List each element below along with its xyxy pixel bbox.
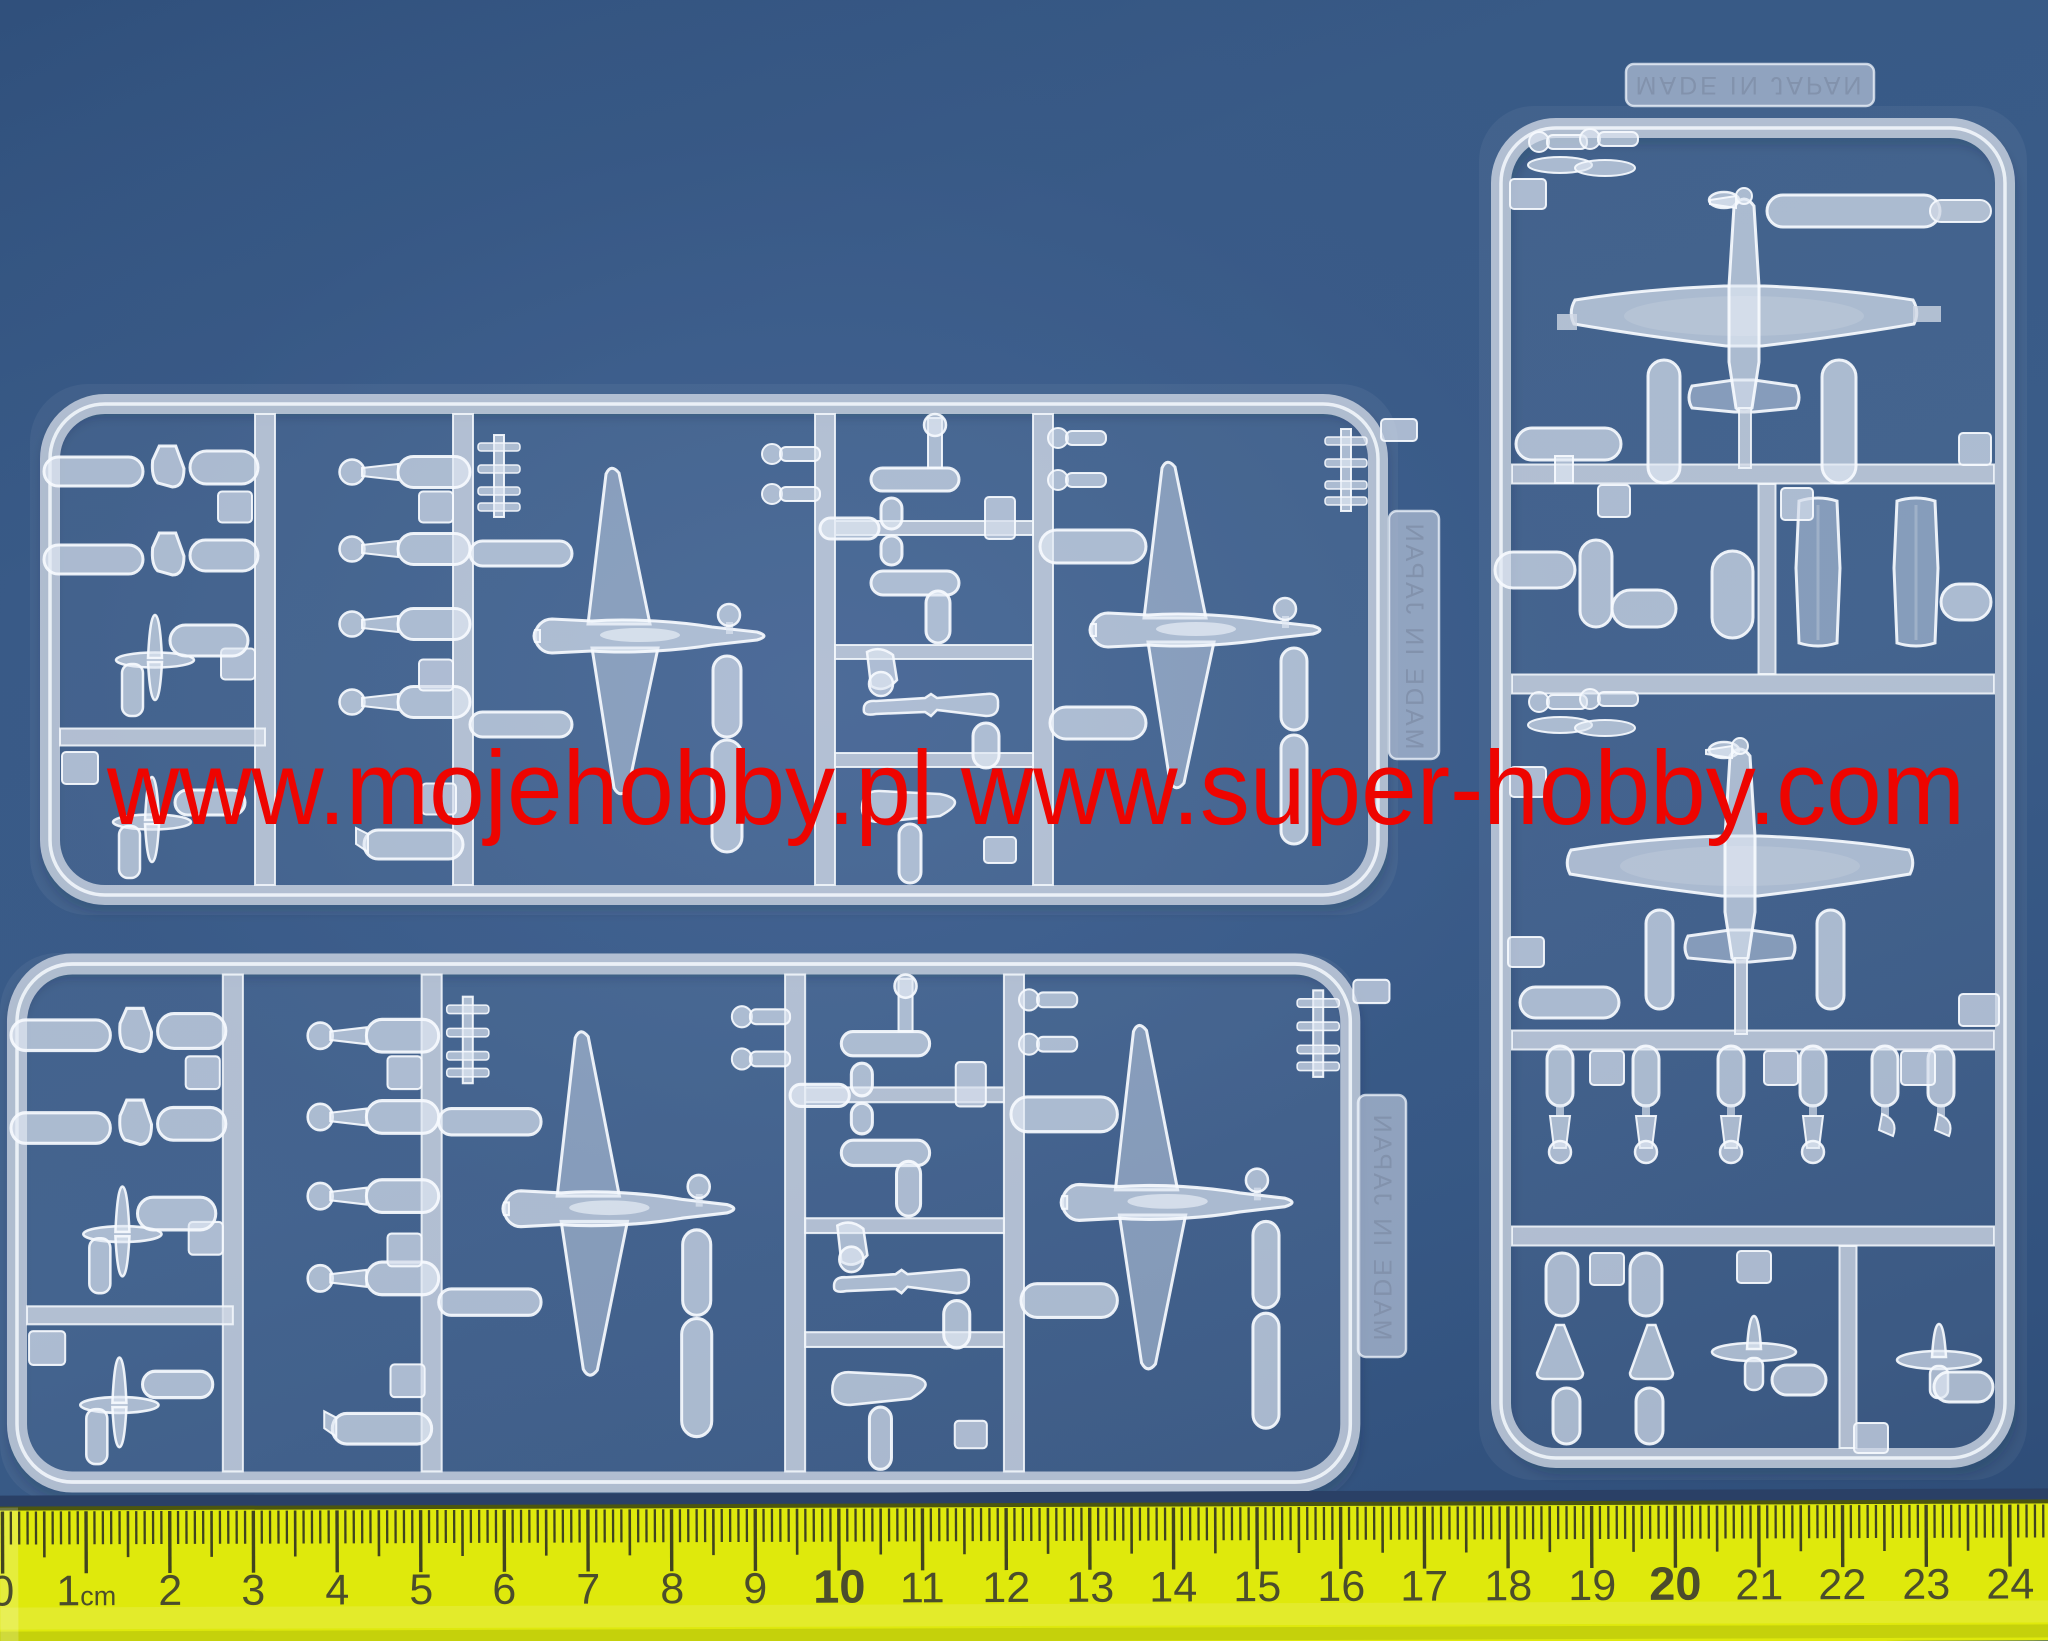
svg-text:3: 3 <box>241 1567 265 1615</box>
svg-text:16: 16 <box>1317 1563 1365 1611</box>
svg-text:MADE IN JAPAN: MADE IN JAPAN <box>1400 521 1428 750</box>
svg-text:15: 15 <box>1233 1563 1281 1611</box>
svg-text:17: 17 <box>1400 1563 1448 1611</box>
svg-text:9: 9 <box>743 1565 767 1613</box>
svg-text:23: 23 <box>1902 1561 1950 1609</box>
svg-text:MADE IN JAPAN: MADE IN JAPAN <box>1636 71 1865 99</box>
svg-text:MADE IN JAPAN: MADE IN JAPAN <box>1368 1112 1396 1341</box>
svg-text:19: 19 <box>1568 1562 1616 1610</box>
svg-text:8: 8 <box>660 1565 684 1613</box>
svg-text:2: 2 <box>158 1567 182 1615</box>
svg-text:11: 11 <box>900 1564 945 1612</box>
svg-text:www.mojehobby.pl www.super-hob: www.mojehobby.pl www.super-hobby.com <box>106 730 1965 847</box>
svg-text:12: 12 <box>982 1564 1030 1612</box>
svg-text:13: 13 <box>1066 1564 1114 1612</box>
svg-text:14: 14 <box>1149 1563 1197 1611</box>
svg-text:10: 10 <box>813 1560 865 1613</box>
svg-text:6: 6 <box>492 1566 516 1614</box>
svg-text:21: 21 <box>1735 1561 1783 1609</box>
svg-text:5: 5 <box>409 1566 433 1614</box>
svg-text:18: 18 <box>1484 1562 1532 1610</box>
svg-text:20: 20 <box>1649 1557 1701 1610</box>
svg-text:7: 7 <box>576 1565 600 1613</box>
svg-text:22: 22 <box>1818 1561 1866 1609</box>
svg-text:4: 4 <box>325 1566 349 1614</box>
svg-text:0: 0 <box>0 1568 14 1616</box>
svg-text:24: 24 <box>1986 1560 2034 1608</box>
